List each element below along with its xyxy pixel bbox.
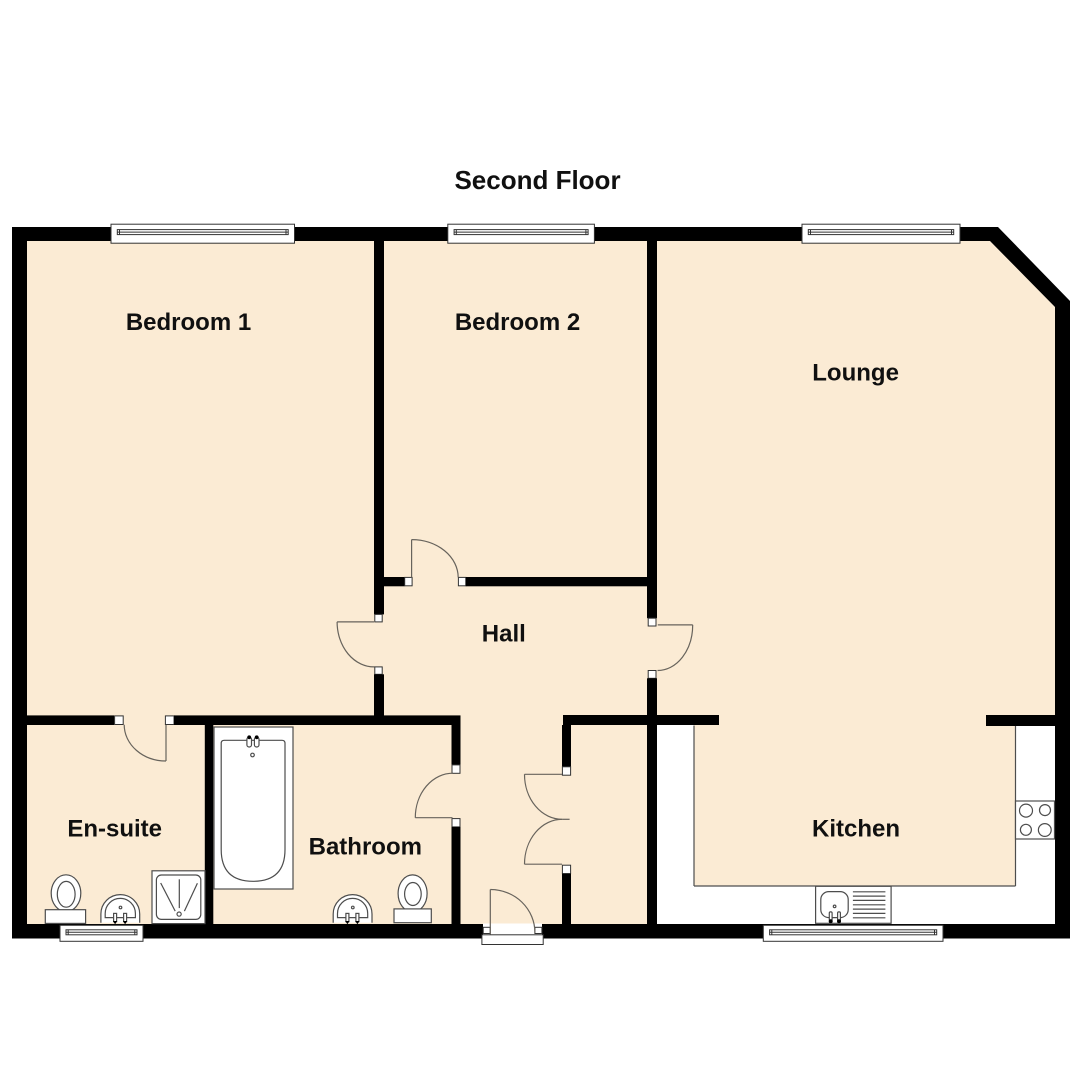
svg-text:Lounge: Lounge (812, 360, 899, 387)
svg-text:Kitchen: Kitchen (812, 816, 900, 843)
svg-text:Bedroom 2: Bedroom 2 (455, 309, 580, 336)
svg-text:Bathroom: Bathroom (309, 834, 422, 861)
svg-text:En-suite: En-suite (67, 816, 162, 843)
svg-text:Bedroom 1: Bedroom 1 (126, 309, 251, 336)
svg-text:Second Floor: Second Floor (454, 165, 620, 195)
svg-text:Hall: Hall (482, 621, 526, 648)
